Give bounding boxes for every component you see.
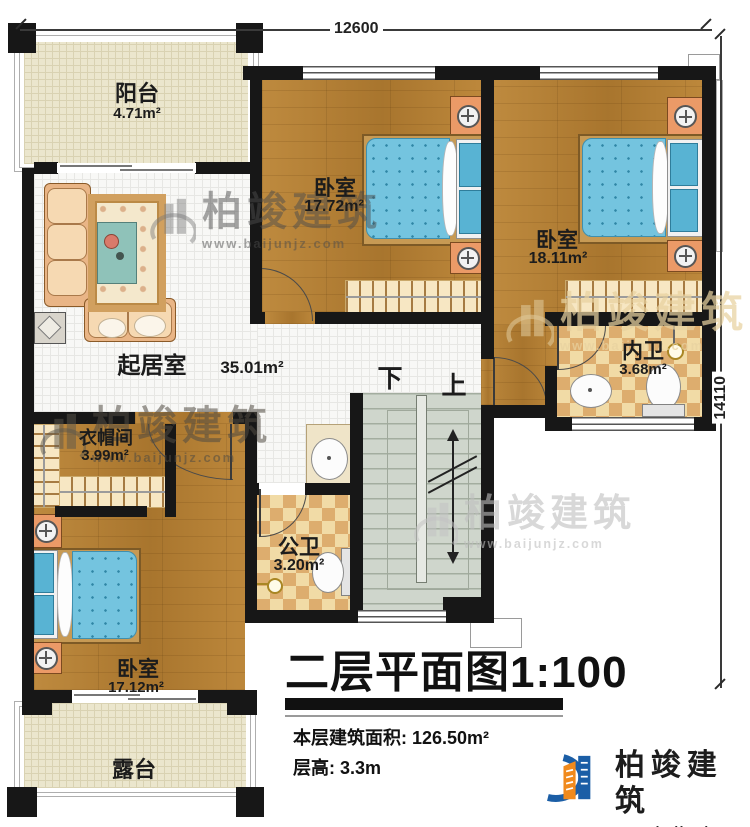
plan-title: 二层平面图1:100 <box>285 636 628 700</box>
living-room-label: 起居室 <box>118 353 187 377</box>
bedroom3-door-patch <box>135 412 233 424</box>
nightstand <box>30 514 62 548</box>
bedroom3-label: 卧室 <box>117 659 159 681</box>
bedroom1-label: 卧室 <box>314 178 356 200</box>
bedroom1-area: 17.72m² <box>304 199 364 216</box>
pillar <box>236 787 264 817</box>
company-logo: 柏竣建筑 www.baijunjz.com <box>534 748 750 827</box>
cloakroom-rack <box>57 476 169 508</box>
floor-area-line: 本层建筑面积: 126.50m² <box>293 724 489 750</box>
arrow-head-down <box>447 552 459 564</box>
wall-middle-bottom-corner <box>443 597 494 623</box>
bedroom3-door-leaf <box>230 424 232 480</box>
table-flowers <box>116 252 124 260</box>
wall-bedroom3-corner <box>227 690 257 715</box>
public-bath-door-leaf <box>259 489 261 537</box>
dimension-tick <box>700 18 711 29</box>
wall-bedroom1-bottom <box>315 312 481 324</box>
wall-hallway-left <box>481 314 494 359</box>
headboard-cushion <box>34 553 54 593</box>
wall-public-bath-top <box>305 483 363 495</box>
wall-bedroom3-corner <box>22 690 52 715</box>
pillar <box>8 23 36 53</box>
wall-bedroom-divider <box>481 66 494 314</box>
bed-mattress <box>366 138 450 239</box>
inner-bath-window <box>572 417 694 431</box>
stair-up-label: 上 <box>441 373 466 399</box>
nightstand <box>30 642 62 674</box>
inner-bath-door-leaf <box>557 326 559 370</box>
company-logo-icon <box>534 748 607 814</box>
right-dimension-label: 14110 <box>712 372 730 424</box>
sink-drain <box>327 456 331 460</box>
bedroom2-area: 18.11m² <box>529 251 588 268</box>
headboard-cushion <box>34 595 54 635</box>
headboard-cushion <box>670 189 698 232</box>
sofa-cushion <box>47 224 87 260</box>
headboard-cushion <box>459 190 483 234</box>
cloakroom-label: 衣帽间 <box>79 429 133 448</box>
wall-left <box>22 168 34 703</box>
terrace-label: 露台 <box>112 758 156 781</box>
hallway-door-leaf <box>493 357 495 406</box>
headboard-cushion <box>670 143 698 186</box>
bedroom2-window <box>540 66 658 80</box>
public-bath-label: 公卫 <box>278 537 320 559</box>
wall-cloakroom-right <box>165 424 176 517</box>
title-underline-thin <box>285 715 563 717</box>
throw-pillow <box>98 318 126 338</box>
sink-drain <box>588 388 592 392</box>
floor-plan: 12600 14110 <box>0 0 750 827</box>
ceiling-lamp <box>667 343 684 360</box>
nightstand <box>667 97 704 136</box>
drain-pipe <box>257 583 268 585</box>
wall-stair-left <box>350 393 363 623</box>
wall-bedroom1-left <box>250 66 262 324</box>
wall-balcony-stub <box>195 162 250 174</box>
cloakroom-area: 3.99m² <box>81 448 129 464</box>
nightstand <box>667 240 704 272</box>
top-dimension-label: 12600 <box>330 20 383 38</box>
sofa-cushion <box>47 188 87 224</box>
wall-cloakroom-bottom <box>55 506 147 517</box>
balcony-label: 阳台 <box>115 82 159 105</box>
wall-balcony-stub <box>34 162 58 174</box>
wardrobe <box>565 280 705 314</box>
inner-bath-area: 3.68m² <box>619 362 667 378</box>
bed-mattress <box>72 551 137 639</box>
bedroom2-label: 卧室 <box>536 230 578 252</box>
balcony-sliding-door <box>57 163 196 173</box>
arrow-head-up <box>447 429 459 441</box>
wall-bedroom2-bottom <box>545 312 702 326</box>
table-flowers <box>104 234 119 249</box>
wardrobe <box>345 280 485 314</box>
stair-window <box>358 610 446 623</box>
pillar <box>236 23 263 53</box>
sofa-cushion <box>47 260 87 296</box>
toilet-tank <box>642 404 685 417</box>
bedroom3-area: 17.12m² <box>108 680 164 696</box>
throw-pillow <box>134 315 166 337</box>
balcony-area: 4.71m² <box>113 106 161 122</box>
public-bath-area: 3.20m² <box>274 558 325 575</box>
headboard-cushion <box>459 143 483 187</box>
floor-drain <box>267 578 283 594</box>
stair-direction-arrow <box>452 440 454 556</box>
wall-left-column-right <box>245 412 257 623</box>
title-underline-bar <box>285 698 563 710</box>
wall-living-bedroom3 <box>22 412 135 424</box>
bedroom1-window <box>303 66 435 80</box>
bed-pillow <box>57 552 73 637</box>
floor-height-line: 层高: 3.3m <box>293 754 381 780</box>
stair-down-label: 下 <box>377 366 402 392</box>
inner-bath-label: 内卫 <box>622 341 664 363</box>
wall-stair-right <box>481 405 494 623</box>
stair-handrail <box>416 395 427 583</box>
wall-bedroom1-bottom <box>250 312 265 324</box>
right-dimension-line <box>720 36 722 688</box>
living-room-area: 35.01m² <box>220 359 283 377</box>
pillar <box>7 787 37 817</box>
company-name: 柏竣建筑 <box>615 748 750 820</box>
